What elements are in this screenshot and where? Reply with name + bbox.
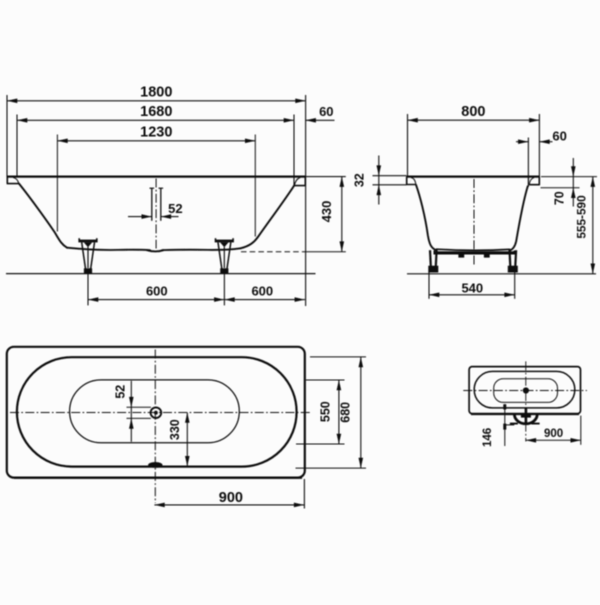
svg-text:555-590: 555-590 [575,195,589,239]
svg-text:60: 60 [552,128,566,143]
svg-text:540: 540 [461,281,483,296]
svg-text:600: 600 [251,284,273,299]
svg-text:1680: 1680 [140,104,172,120]
svg-text:680: 680 [339,402,353,423]
svg-text:600: 600 [146,284,168,299]
svg-text:1800: 1800 [140,85,172,101]
svg-text:60: 60 [319,104,333,119]
svg-text:550: 550 [319,401,333,422]
svg-text:146: 146 [482,428,494,447]
svg-text:70: 70 [553,191,567,205]
svg-text:430: 430 [319,201,334,223]
svg-text:52: 52 [168,201,182,216]
svg-text:800: 800 [461,104,485,120]
svg-text:52: 52 [114,385,128,399]
svg-text:330: 330 [168,419,182,440]
svg-text:32: 32 [353,173,367,187]
svg-text:900: 900 [544,428,563,440]
svg-text:900: 900 [219,490,243,506]
svg-text:1230: 1230 [140,125,172,141]
